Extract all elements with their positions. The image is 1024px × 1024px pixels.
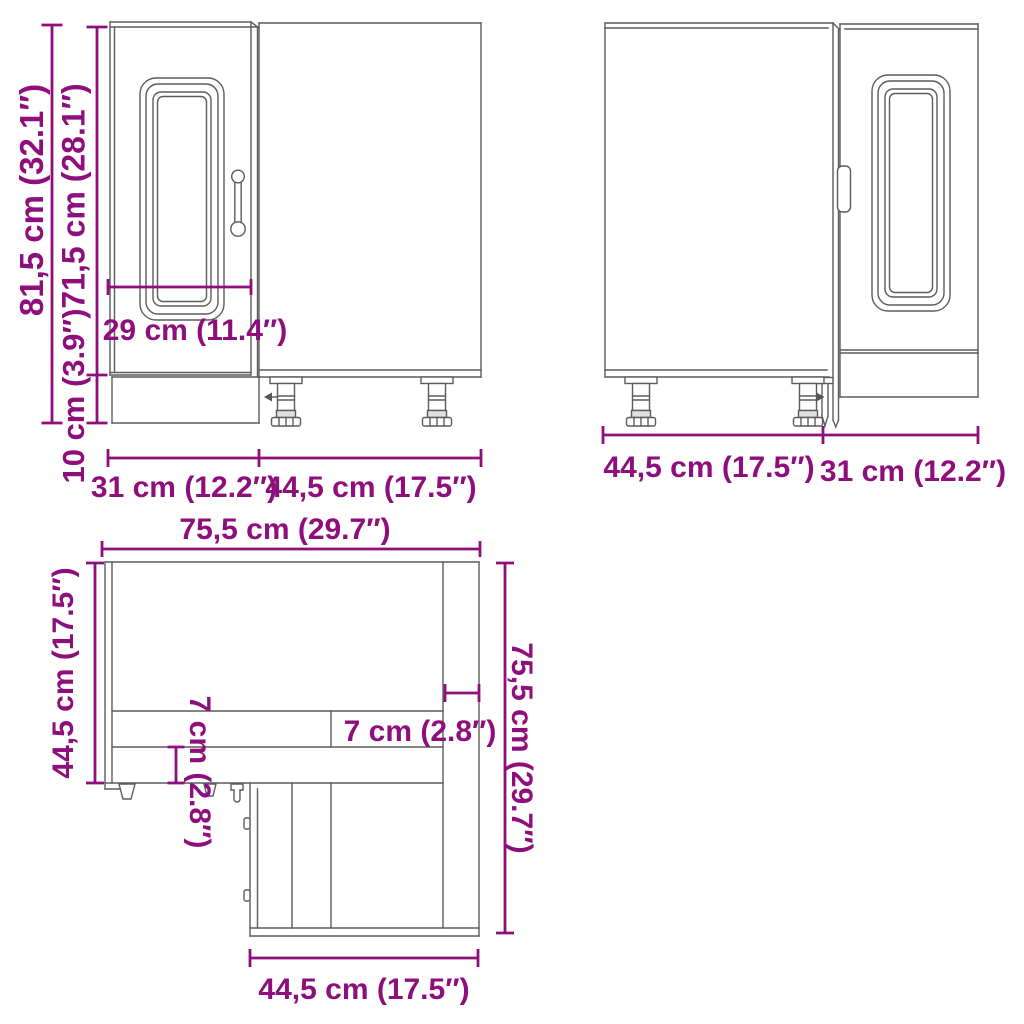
dim-total-height: 81,5 cm (32.1″) (13, 84, 50, 316)
adjustable-feet (264, 377, 453, 426)
hinge-knob (231, 784, 243, 802)
foot-top-mark (119, 784, 135, 799)
dim-side-panel-width: 7 cm (2.8″) (183, 696, 216, 849)
dim-width-bottom: 44,5 cm (17.5″) (258, 973, 469, 1006)
dim-width-right: 31 cm (12.2″) (820, 455, 1006, 488)
dim-plinth-height: 10 cm (3.9″) (56, 308, 91, 483)
dim-width-top: 75,5 cm (29.7″) (179, 513, 390, 546)
foot-adjuster-arrow (264, 393, 272, 402)
door-handle (838, 166, 851, 212)
door-panel (872, 75, 950, 311)
adjustable-feet (625, 377, 833, 426)
cabinet-outline (110, 22, 481, 423)
dimension-lines (603, 426, 978, 444)
foot-adjuster-arrow (817, 393, 825, 402)
dimension-lines (86, 541, 514, 967)
dim-door-width: 29 cm (11.4″) (103, 314, 287, 347)
door-panel (140, 78, 224, 320)
dim-width-left: 31 cm (12.2″) (91, 471, 277, 504)
hinge-bump (244, 818, 250, 829)
cabinet-outline (605, 23, 978, 427)
technical-drawing: 81,5 cm (32.1″) 71,5 cm (28.1″) 10 cm (3… (0, 0, 1024, 1024)
cabinet-outline (105, 562, 479, 936)
dim-depth-right: 75,5 cm (29.7″) (505, 642, 538, 853)
front-view-left: 81,5 cm (32.1″) 71,5 cm (28.1″) 10 cm (3… (13, 22, 481, 504)
door-handle (231, 170, 245, 236)
dim-depth-left: 44,5 cm (17.5″) (47, 567, 80, 778)
front-view-right: 44,5 cm (17.5″) 31 cm (12.2″) (603, 23, 1006, 488)
dim-width-left: 44,5 cm (17.5″) (603, 451, 814, 484)
dim-width-right: 44,5 cm (17.5″) (265, 471, 476, 504)
dimension-lines (42, 25, 482, 467)
hinge-bump (244, 890, 250, 901)
dim-front-panel-depth: 7 cm (2.8″) (344, 715, 497, 748)
dim-door-height: 71,5 cm (28.1″) (56, 83, 92, 308)
top-view: 75,5 cm (29.7″) 44,5 cm (17.5″) 75,5 cm … (47, 513, 538, 1006)
